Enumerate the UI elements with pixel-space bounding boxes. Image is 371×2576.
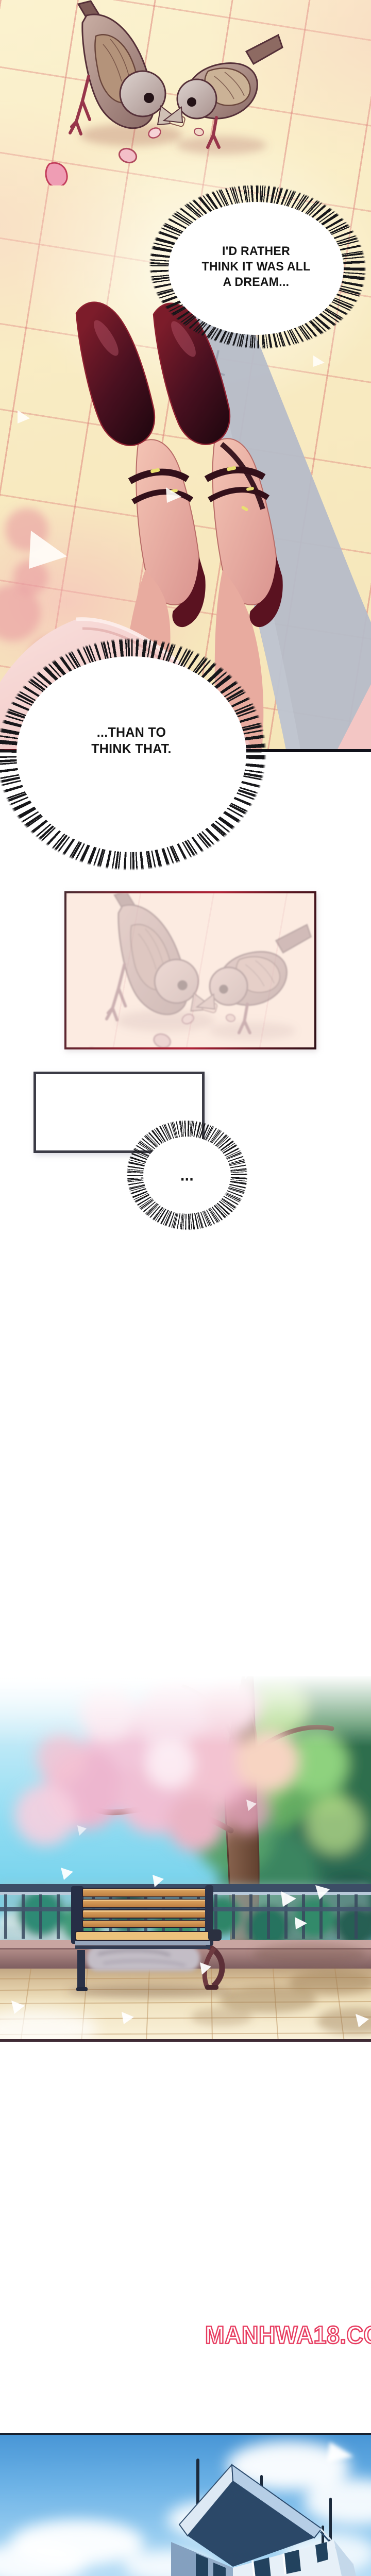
bubble-line: THINK THAT. [91, 741, 172, 758]
bubble-line: ... [180, 1165, 194, 1185]
manhwa-page: I'D RATHER THINK IT WAS ALL A DREAM... .… [0, 0, 371, 2576]
park-scene-panel [0, 1645, 371, 2042]
building-illustration [0, 2435, 371, 2576]
top-scene-birds-and-heels [0, 0, 371, 752]
faded-memory-panel [64, 891, 316, 1049]
bubble-line: A DREAM... [223, 274, 290, 290]
faded-memory-art [66, 893, 314, 1047]
speech-bubble-ellipsis: ... [143, 1137, 231, 1214]
panel-bottom-border [0, 2039, 371, 2042]
bubble-line: I'D RATHER [222, 244, 290, 260]
building-scene-panel [0, 2433, 371, 2576]
park-illustration [0, 1645, 371, 2042]
watermark-text: MANHWA18.CC [205, 2320, 365, 2349]
pink-tint-overlay [66, 893, 314, 1047]
bubble-line: THINK IT WAS ALL [202, 259, 311, 275]
speech-bubble-dream: I'D RATHER THINK IT WAS ALL A DREAM... [168, 202, 344, 335]
sparrows-illustration [0, 0, 371, 185]
bubble-line: ...THAN TO [91, 724, 172, 741]
speech-bubble-than-to: ...THAN TO THINK THAT. [16, 656, 246, 852]
top-fade [0, 1645, 371, 1676]
stone-under-bench [87, 1946, 200, 1971]
